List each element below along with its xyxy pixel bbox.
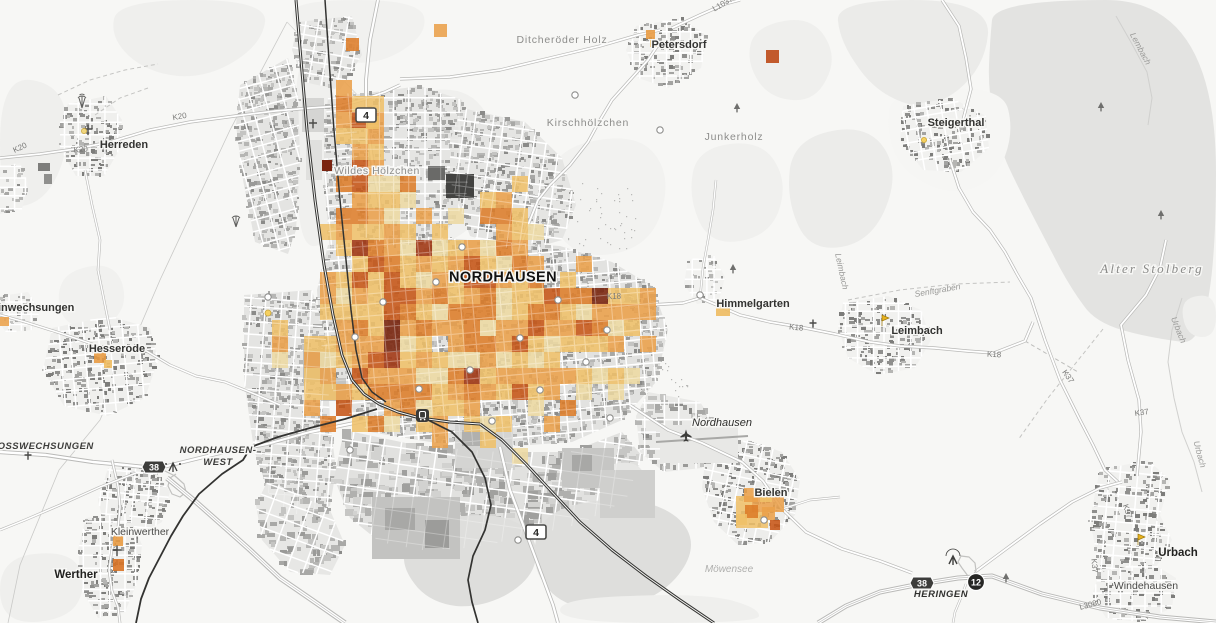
svg-text:Petersdorf: Petersdorf <box>651 39 706 51</box>
svg-text:Leimbach: Leimbach <box>891 325 943 337</box>
svg-text:Ditcheröder Holz: Ditcheröder Holz <box>517 34 608 46</box>
svg-text:K18: K18 <box>607 292 622 301</box>
svg-text:K37: K37 <box>1089 558 1099 574</box>
svg-text:NORDHAUSEN: NORDHAUSEN <box>449 270 557 286</box>
svg-text:K20: K20 <box>73 144 89 154</box>
svg-text:4: 4 <box>533 527 539 539</box>
svg-text:HERINGEN: HERINGEN <box>914 589 969 600</box>
svg-text:Werther: Werther <box>54 569 98 581</box>
svg-text:Herreden: Herreden <box>100 139 149 151</box>
svg-text:ROSSWECHSUNGEN: ROSSWECHSUNGEN <box>0 441 94 452</box>
svg-text:Bielen: Bielen <box>754 487 787 499</box>
svg-text:Windehausen: Windehausen <box>1114 580 1178 592</box>
svg-text:Nordhausen: Nordhausen <box>692 417 752 429</box>
svg-text:Alter Stolberg: Alter Stolberg <box>1099 261 1204 276</box>
svg-text:12: 12 <box>971 578 981 588</box>
svg-text:Urbach: Urbach <box>1158 547 1198 559</box>
svg-text:Möwensee: Möwensee <box>705 564 754 575</box>
svg-text:K18: K18 <box>789 322 805 332</box>
svg-text:38: 38 <box>917 578 927 588</box>
svg-text:WEST: WEST <box>203 457 233 468</box>
svg-text:38: 38 <box>149 462 159 472</box>
svg-text:K18: K18 <box>987 350 1002 360</box>
svg-text:Steigerthal: Steigerthal <box>928 117 985 129</box>
svg-text:Kleinwerther: Kleinwerther <box>111 526 170 538</box>
svg-text:NORDHAUSEN-: NORDHAUSEN- <box>180 445 257 456</box>
svg-text:Kirschhölzchen: Kirschhölzchen <box>547 117 629 129</box>
svg-text:Hesserode: Hesserode <box>89 343 145 355</box>
svg-text:4: 4 <box>363 110 369 122</box>
svg-text:Wildes Hölzchen: Wildes Hölzchen <box>334 165 420 177</box>
svg-text:Junkerholz: Junkerholz <box>705 131 764 143</box>
svg-text:Himmelgarten: Himmelgarten <box>716 298 790 310</box>
svg-text:inwechsungen: inwechsungen <box>0 302 75 314</box>
